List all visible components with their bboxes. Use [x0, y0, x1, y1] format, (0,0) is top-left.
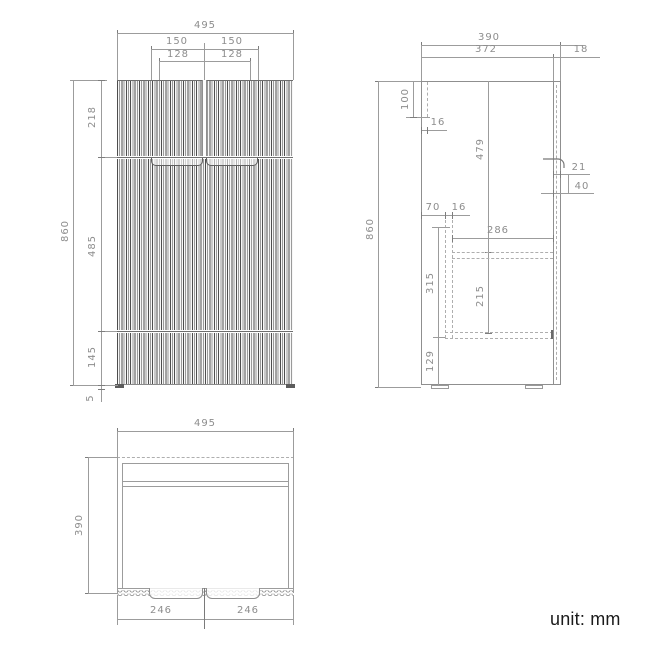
dimension-line [541, 193, 594, 194]
back-panel-line [122, 481, 289, 482]
dimension-line [413, 81, 414, 117]
dimension-line [421, 45, 583, 46]
extension-line [421, 45, 422, 81]
dim-front-grip-left: 128 [167, 50, 189, 60]
extension-line [293, 595, 294, 625]
tick [452, 235, 453, 242]
outline [293, 457, 294, 593]
dim-front-handle-left: 150 [166, 37, 188, 47]
tick [485, 333, 492, 334]
dim-top-door-left: 246 [150, 606, 172, 616]
extension-line [117, 431, 118, 457]
dimension-line [421, 57, 600, 58]
tick [560, 171, 561, 178]
dim-front-bottom-section: 145 [88, 346, 98, 368]
extension-line [88, 457, 118, 458]
dimension-line [488, 81, 489, 333]
dim-front-top-section: 218 [88, 106, 98, 128]
extension-line [568, 174, 569, 193]
extension-line [432, 227, 450, 228]
hidden-line [556, 85, 557, 380]
extension-line [553, 57, 554, 81]
back-edge-hidden-line [117, 457, 294, 458]
dim-side-shelf-height: 215 [476, 285, 486, 307]
tick [553, 171, 554, 178]
handle-recess-left [151, 158, 203, 166]
extension-line [560, 45, 561, 81]
dim-side-bottom-clearance: 129 [426, 350, 436, 372]
dim-side-total-height: 860 [366, 218, 376, 240]
dim-front-grip-right: 128 [221, 50, 243, 60]
tick [553, 235, 554, 242]
tick [421, 127, 422, 134]
dim-top-total-width: 495 [194, 419, 216, 429]
handle-recess-right [206, 158, 258, 166]
extension-line [293, 33, 294, 80]
dimension-line [438, 337, 439, 385]
dimension-drawing: 495 150 150 128 128 860 218 485 145 5 [0, 0, 650, 650]
tick [452, 212, 453, 219]
back-panel-line [122, 486, 289, 487]
dim-front-total-width: 495 [194, 21, 216, 31]
dimension-line [117, 619, 294, 620]
handle-recess-right [206, 588, 260, 599]
hidden-line-end [551, 330, 553, 339]
outline [117, 457, 118, 593]
tick [98, 385, 105, 386]
dimension-line [73, 80, 74, 385]
back-panel-line [122, 463, 289, 464]
extension-line [117, 33, 118, 80]
extension-line [159, 61, 160, 80]
tick [98, 389, 105, 390]
lower-split-line [117, 330, 293, 333]
dim-side-rail-length: 315 [426, 272, 436, 294]
dimension-line [88, 457, 89, 593]
extension-line [88, 593, 118, 594]
cabinet-foot [286, 384, 295, 388]
hidden-line [452, 252, 553, 253]
dimension-line [553, 174, 590, 175]
dimension-line [117, 33, 293, 34]
dim-side-back-rail-thickness: 16 [431, 118, 446, 128]
dim-side-handle-depth: 21 [572, 163, 587, 173]
dimension-line [421, 130, 447, 131]
door-center-gap [202, 80, 207, 158]
extension-line [378, 81, 421, 82]
tick [427, 127, 428, 134]
extension-line [293, 431, 294, 457]
dimension-line [117, 431, 294, 432]
tick [204, 616, 205, 623]
tick [98, 331, 105, 332]
hidden-line [452, 258, 553, 259]
hidden-line [445, 338, 553, 339]
dim-front-middle-section: 485 [88, 235, 98, 257]
tick [421, 212, 422, 219]
tick [98, 80, 105, 81]
dimension-line [378, 81, 379, 387]
hidden-line [445, 332, 553, 333]
unit-label: unit: mm [550, 609, 621, 630]
extension-line [73, 385, 118, 386]
tick [445, 212, 446, 219]
extension-line [378, 387, 421, 388]
handle-recess-left [149, 588, 203, 599]
dimension-line [438, 227, 439, 337]
handle-profile [542, 155, 568, 169]
dim-side-total-depth: 390 [478, 33, 500, 43]
tick [433, 337, 445, 338]
tick [98, 157, 105, 158]
dim-side-rail-offset: 70 [426, 203, 441, 213]
dim-top-door-right: 246 [237, 606, 259, 616]
dim-front-handle-right: 150 [221, 37, 243, 47]
extension-line [258, 49, 259, 80]
drawer-split-line [117, 156, 293, 159]
cabinet-foot [525, 385, 543, 389]
dim-side-rail-thickness: 16 [452, 203, 467, 213]
extension-line [151, 49, 152, 80]
shelf-line [452, 238, 553, 239]
dim-front-total-height: 860 [61, 220, 71, 242]
dim-side-shelf-depth: 286 [487, 226, 509, 236]
dimension-line [101, 80, 102, 402]
dim-side-back-rail-height: 100 [401, 88, 411, 110]
dim-side-door-thickness: 18 [574, 45, 589, 55]
hidden-line [427, 82, 428, 117]
dim-side-handle-height: 40 [575, 182, 590, 192]
tick [410, 117, 417, 118]
dim-side-carcass-depth: 372 [475, 45, 497, 55]
extension-line [250, 61, 251, 80]
tick [553, 190, 554, 197]
dim-front-plinth: 5 [86, 394, 96, 401]
extension-line [117, 595, 118, 625]
side-door-panel [553, 81, 561, 385]
dimension-line [159, 61, 250, 62]
dim-top-total-depth: 390 [75, 514, 85, 536]
dim-side-interior-height: 479 [476, 138, 486, 160]
hidden-line [445, 220, 446, 338]
cabinet-foot [431, 385, 449, 389]
